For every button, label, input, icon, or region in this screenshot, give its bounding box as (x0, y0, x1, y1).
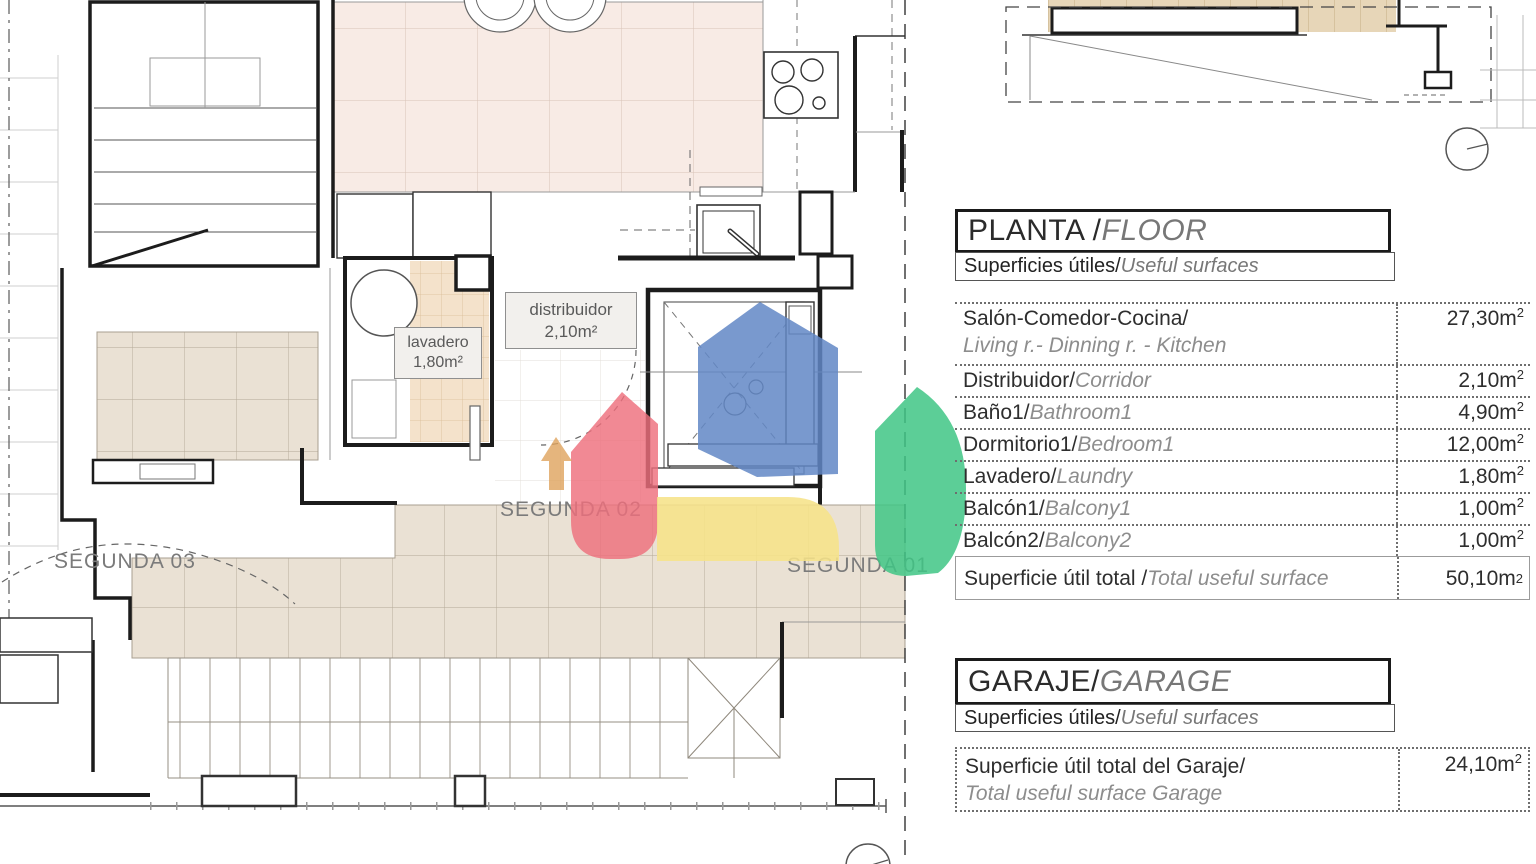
room-label-lavadero: lavadero 1,80m² (394, 327, 482, 379)
table-row-total: Superficie útil total / Total useful sur… (955, 556, 1530, 600)
table-row: Dormitorio1/Bedroom1 12,00m2 (955, 430, 1530, 462)
table-row: Salón-Comedor-Cocina/Living r.- Dinning … (955, 304, 1530, 366)
floor-table-subtitle: Superficies útiles/Useful surfaces (955, 252, 1395, 281)
floor-title-es: PLANTA / (968, 214, 1102, 248)
table-row: Lavadero/Laundry 1,80m2 (955, 462, 1530, 494)
room-name: lavadero (395, 333, 481, 353)
section-marker-icon (1446, 128, 1488, 170)
neighbor-structures (0, 0, 58, 655)
table-row: Distribuidor/Corridor 2,10m2 (955, 366, 1530, 398)
garage-total-row: Superficie útil total del Garaje/Total u… (955, 747, 1530, 812)
floor-surfaces-table: Salón-Comedor-Cocina/Living r.- Dinning … (955, 302, 1530, 600)
garage-table-title: GARAJE/GARAGE (955, 658, 1391, 705)
garage-table-subtitle: Superficies útiles/Useful surfaces (955, 704, 1395, 732)
table-row: Balcón1/Balcony1 1,00m2 (955, 494, 1530, 526)
room-name: distribuidor (506, 299, 636, 320)
table-row: Balcón2/Balcony2 1,00m2 (955, 526, 1530, 556)
floor-table-title: PLANTA / FLOOR (955, 209, 1391, 253)
kitchen-counter-stove (763, 0, 905, 192)
mini-plan-top-right (1006, 0, 1536, 170)
room-label-distribuidor: distribuidor 2,10m² (505, 292, 637, 349)
floor-title-en: FLOOR (1102, 214, 1208, 248)
logo-yellow-shape (657, 497, 839, 561)
floor-plan-sheet: SEGUNDA 03 SEGUNDA 02 SEGUNDA 01 lavader… (0, 0, 1536, 864)
logo-green-shape (875, 387, 966, 576)
room-area: 1,80m² (395, 353, 481, 373)
staircase (90, 2, 318, 266)
garage-title-es: GARAJE/ (968, 665, 1100, 699)
garage-title-en: GARAGE (1100, 665, 1231, 699)
table-row: Baño1/Bathroom1 4,90m2 (955, 398, 1530, 430)
room-area: 2,10m² (506, 321, 636, 342)
roof-structure (168, 658, 780, 778)
section-marker-bottom-icon (846, 844, 890, 864)
zone-label-segunda-03: SEGUNDA 03 (54, 550, 196, 573)
